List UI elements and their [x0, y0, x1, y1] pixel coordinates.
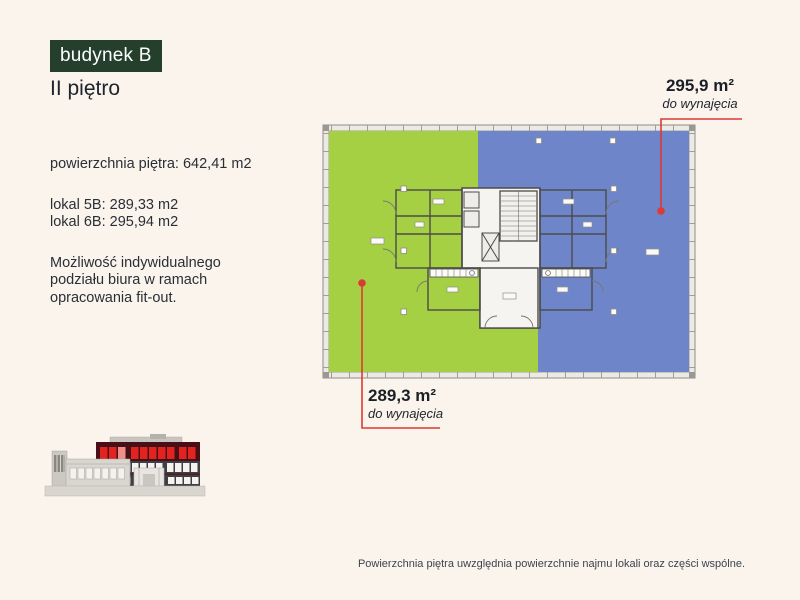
- unit-6b-line: lokal 6B: 295,94 m2: [50, 214, 320, 232]
- info-panel: powierzchnia piętra: 642,41 m2 lokal 5B:…: [50, 156, 320, 330]
- building-badge: budynek B: [50, 40, 162, 72]
- area-label-6b: 295,9 m² do wynajęcia: [630, 76, 770, 112]
- area-availability-5b: do wynajęcia: [368, 406, 508, 422]
- wing-windows: [70, 468, 125, 479]
- leader-dot-5b: [358, 279, 366, 287]
- unit-5b-line: lokal 5B: 289,33 m2: [50, 197, 320, 215]
- area-label-5b: 289,3 m² do wynajęcia: [368, 386, 508, 422]
- building-elevation: [45, 434, 205, 496]
- stairwell: [500, 191, 537, 241]
- fit-out-note: Możliwość indywidualnego podziału biura …: [50, 255, 320, 308]
- area-value-6b: 295,9 m²: [630, 76, 770, 96]
- unit-area-lines: lokal 5B: 289,33 m2 lokal 6B: 295,94 m2: [50, 197, 320, 232]
- leader-dot-6b: [657, 207, 665, 215]
- footer-disclaimer: Powierzchnia piętra uwzględnia powierzch…: [358, 558, 745, 570]
- floor-title: II piętro: [50, 77, 120, 101]
- area-value-5b: 289,3 m²: [368, 386, 508, 406]
- floor-area-text: powierzchnia piętra: 642,41 m2: [50, 156, 320, 174]
- page: { "page": { "background_color": "#fbf4ec…: [0, 0, 800, 600]
- area-availability-6b: do wynajęcia: [630, 96, 770, 112]
